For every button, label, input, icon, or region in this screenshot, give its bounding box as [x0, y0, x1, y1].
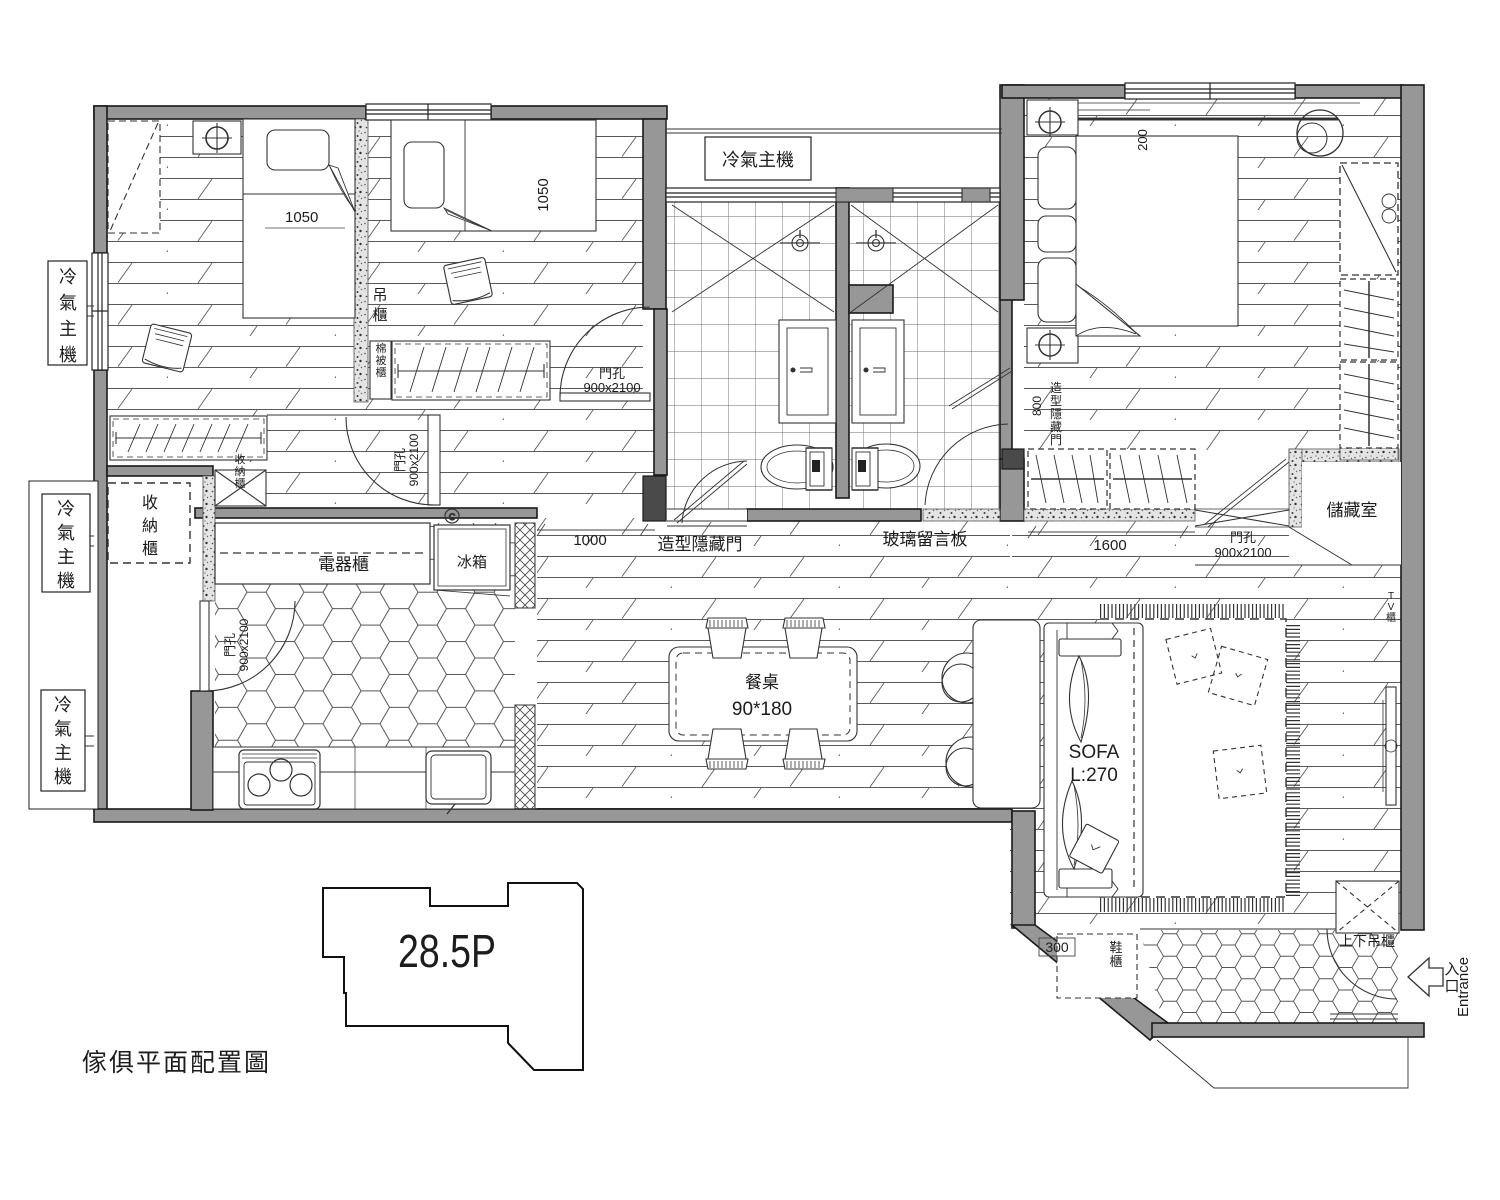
svg-text:造型隱藏門: 造型隱藏門	[1050, 381, 1062, 447]
svg-text:上下吊櫃: 上下吊櫃	[1339, 933, 1395, 949]
svg-text:玻璃留言板: 玻璃留言板	[883, 530, 968, 549]
svg-text:冰箱: 冰箱	[457, 554, 487, 571]
svg-text:800: 800	[1030, 396, 1044, 416]
svg-text:棉被櫃: 棉被櫃	[376, 341, 387, 379]
svg-text:門孔: 門孔	[223, 633, 237, 657]
svg-text:收納櫃: 收納櫃	[142, 494, 158, 558]
svg-text:門孔: 門孔	[393, 448, 407, 472]
svg-text:L:270: L:270	[1070, 765, 1118, 786]
svg-text:300: 300	[1045, 939, 1069, 955]
svg-text:鞋櫃: 鞋櫃	[1109, 940, 1122, 969]
svg-text:傢俱平面配置圖: 傢俱平面配置圖	[82, 1049, 271, 1077]
svg-text:電器櫃: 電器櫃	[318, 555, 369, 574]
svg-text:Entrance: Entrance	[1455, 957, 1472, 1017]
svg-text:90*180: 90*180	[732, 699, 792, 720]
svg-text:900x2100: 900x2100	[1214, 545, 1271, 560]
svg-text:900x2100: 900x2100	[583, 380, 640, 395]
svg-text:900x2100: 900x2100	[407, 433, 421, 486]
svg-text:1000: 1000	[573, 532, 606, 549]
svg-text:28.5P: 28.5P	[398, 925, 496, 977]
svg-text:收納櫃: 收納櫃	[235, 452, 246, 490]
svg-text:儲藏室: 儲藏室	[1327, 501, 1378, 520]
svg-text:冷氣主機: 冷氣主機	[722, 150, 794, 170]
svg-text:1600: 1600	[1093, 537, 1126, 554]
svg-text:門孔: 門孔	[1230, 530, 1256, 545]
svg-text:造型隱藏門: 造型隱藏門	[658, 535, 743, 554]
svg-text:餐桌: 餐桌	[745, 673, 779, 692]
svg-text:900x2100: 900x2100	[237, 618, 251, 671]
svg-text:1050: 1050	[535, 178, 552, 211]
svg-text:1050: 1050	[285, 209, 318, 226]
svg-text:200: 200	[1135, 129, 1150, 151]
svg-text:SOFA: SOFA	[1069, 742, 1120, 763]
svg-text:門孔: 門孔	[599, 366, 625, 381]
svg-text:C: C	[449, 512, 456, 522]
